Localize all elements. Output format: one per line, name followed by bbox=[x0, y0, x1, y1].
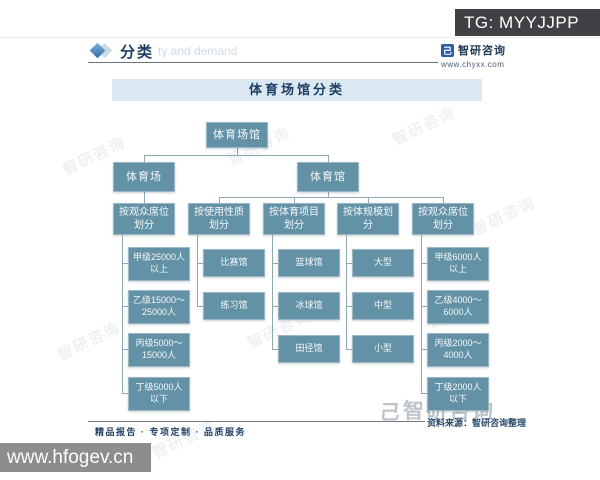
footer-tagline: 精品报告 · 专项定制 · 品质服务 bbox=[95, 425, 246, 438]
connector-line bbox=[421, 235, 422, 394]
tree-node-leaf: 甲级25000人以上 bbox=[128, 247, 190, 281]
tree-node-root: 体育场馆 bbox=[206, 122, 268, 148]
brand-logo: 己 智研咨询 www.chyxx.com bbox=[441, 42, 506, 69]
tree-node-leaf: 比赛馆 bbox=[203, 249, 265, 277]
tree-node-leaf: 小型 bbox=[352, 335, 414, 363]
watermark-text: 智研咨询 bbox=[389, 101, 459, 150]
tree-node-leaf: 冰球馆 bbox=[278, 292, 340, 320]
tree-node-group: 按体规模划分 bbox=[337, 203, 399, 235]
footer-source: 资料来源：智研咨询整理 bbox=[427, 416, 526, 429]
tree-node-branch: 体育馆 bbox=[297, 162, 359, 192]
connector-line bbox=[144, 155, 329, 156]
tree-node-branch: 体育场 bbox=[113, 162, 175, 192]
tree-node-leaf: 中型 bbox=[352, 292, 414, 320]
tree-node-group: 按体育项目划分 bbox=[263, 203, 325, 235]
tg-badge: TG: MYYJJPP bbox=[455, 9, 600, 36]
tree-node-leaf: 乙级15000～25000人 bbox=[128, 290, 190, 324]
watermark-fragment: ty and demand bbox=[158, 44, 237, 58]
tree-node-leaf: 练习馆 bbox=[203, 292, 265, 320]
tree-node-group: 按使用性质划分 bbox=[188, 203, 250, 235]
tree-node-leaf: 大型 bbox=[352, 249, 414, 277]
connector-line bbox=[122, 235, 123, 394]
connector-line bbox=[346, 235, 347, 350]
connector-line bbox=[272, 235, 273, 350]
tree-node-leaf: 丙级5000～15000人 bbox=[128, 333, 190, 367]
connector-line bbox=[237, 148, 238, 155]
watermark-text: 智研咨询 bbox=[54, 316, 124, 365]
connector-line bbox=[197, 235, 198, 307]
connector-line bbox=[219, 197, 444, 198]
tree-node-leaf: 篮球馆 bbox=[278, 249, 340, 277]
tree-node-leaf: 乙级4000～6000人 bbox=[427, 290, 489, 324]
tree-node-leaf: 丁级2000人以下 bbox=[427, 377, 489, 411]
section-title: 分类 bbox=[120, 41, 154, 62]
connector-line bbox=[144, 192, 145, 203]
tree-node-leaf: 丙级2000～4000人 bbox=[427, 333, 489, 367]
brand-logo-site: www.chyxx.com bbox=[441, 60, 506, 69]
url-watermark: www.hfogev.cn bbox=[0, 443, 151, 472]
tree-node-leaf: 甲级6000人以上 bbox=[427, 247, 489, 281]
tree-node-group: 按观众席位划分 bbox=[412, 203, 474, 235]
watermark-text: 智研咨询 bbox=[469, 191, 539, 240]
tree-node-group: 按观众席位划分 bbox=[113, 203, 175, 235]
diagram-title: 体育场馆分类 bbox=[112, 79, 482, 101]
section-heading: 分类 ty and demand bbox=[92, 42, 237, 60]
diamond-icon bbox=[92, 43, 113, 59]
brand-logo-icon: 己 bbox=[441, 44, 454, 57]
screenshot-root: TG: MYYJJPP 分类 ty and demand 己 智研咨询 www.… bbox=[0, 0, 600, 480]
tree-node-leaf: 田径馆 bbox=[278, 335, 340, 363]
tree-node-leaf: 丁级5000人以下 bbox=[128, 377, 190, 411]
footer-divider bbox=[88, 421, 425, 422]
classification-tree: 智研咨询智研咨询智研咨询智研咨询智研咨询智研咨询智研咨询智研咨询体育场馆体育场体… bbox=[0, 0, 600, 480]
brand-logo-name: 智研咨询 bbox=[458, 42, 506, 58]
